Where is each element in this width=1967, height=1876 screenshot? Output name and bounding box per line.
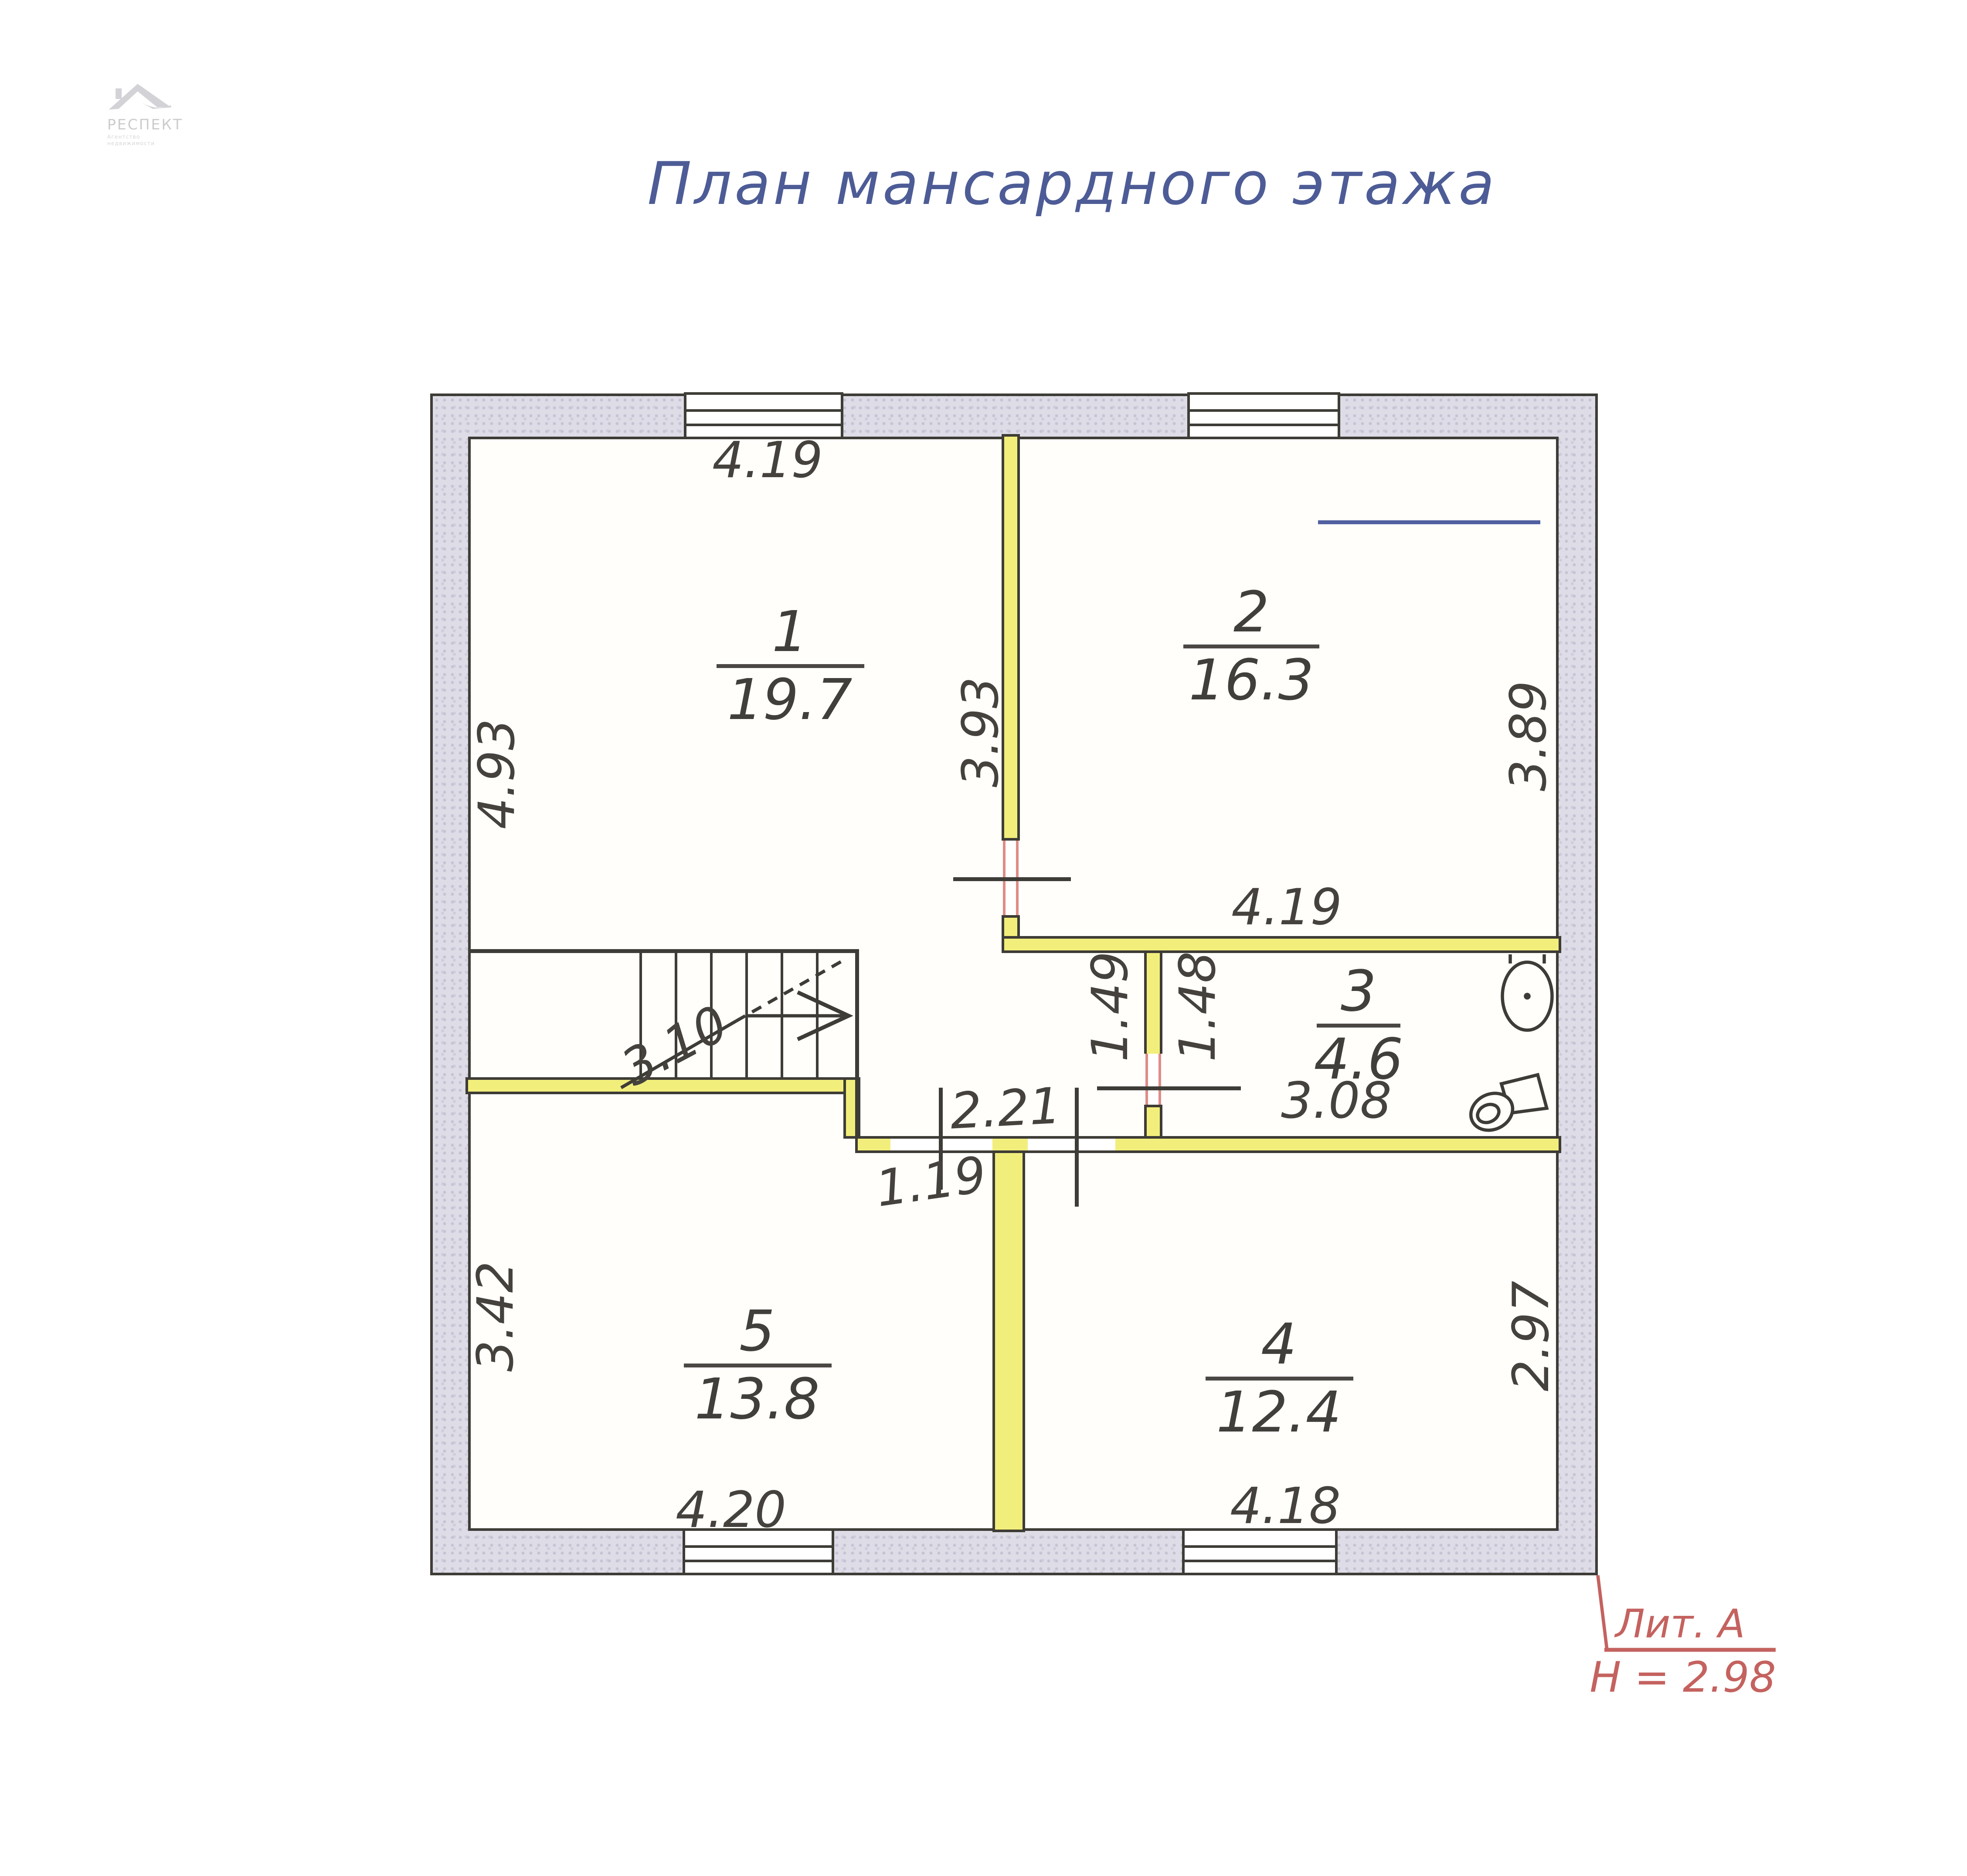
- partition-hall-bath: [1144, 950, 1162, 1056]
- dimension-hall-width: 2.21: [949, 1077, 1062, 1140]
- dimension-room4-height: 2.97: [1502, 1281, 1560, 1391]
- floor-plan-sheet: РЕСПЕКТ Агентство недвижимости План манс…: [0, 0, 1967, 1876]
- window-mullion: [1189, 409, 1339, 412]
- room-1-label: 1 19.7: [711, 604, 868, 731]
- dimension-room1-width: 4.19: [712, 431, 823, 489]
- door-leaf-line: [1075, 1088, 1078, 1207]
- window-mullion: [684, 1545, 833, 1548]
- dimension-room2-inner: 3.89: [1500, 681, 1557, 791]
- note-underline: [1318, 520, 1540, 524]
- dimension-hall-depth: 1.49: [1081, 951, 1139, 1062]
- liter-label: Лит. А: [1615, 1602, 1745, 1648]
- fraction-bar: [1205, 1377, 1353, 1381]
- fraction-bar: [1183, 645, 1319, 648]
- door-opening-room4: [1028, 1136, 1115, 1153]
- room-area: 19.7: [727, 671, 852, 731]
- ceiling-height-note-low: h = 1.48: [0, 29, 984, 86]
- window-room2: [1187, 392, 1340, 439]
- room-number: 3: [1341, 963, 1376, 1021]
- room-area: 12.4: [1216, 1383, 1341, 1443]
- room-number: 2: [1233, 584, 1269, 642]
- toilet-icon: [1463, 1069, 1563, 1145]
- logo-name: РЕСПЕКТ: [107, 118, 186, 133]
- room-5-label: 5 13.8: [679, 1303, 836, 1430]
- dimension-room1-inner: 3.93: [952, 677, 1009, 787]
- door-leaf-line: [1097, 1086, 1241, 1090]
- door-jamb: [1145, 1054, 1148, 1107]
- liter-height: Н = 2.98: [1590, 1652, 1776, 1702]
- dimension-room5-height: 3.42: [467, 1261, 524, 1372]
- dimension-bath-depth: 1.48: [1169, 951, 1226, 1062]
- dimension-room2-width: 4.19: [1231, 879, 1342, 936]
- room-number: 1: [772, 604, 808, 662]
- sink-icon: [1495, 952, 1560, 1035]
- dimension-room1-height: 4.93: [468, 719, 526, 829]
- window-mullion: [1183, 1560, 1336, 1562]
- room-2-label: 2 16.3: [1173, 584, 1330, 711]
- door-leaf-line: [953, 877, 1071, 881]
- partition-room2-hall: [1002, 936, 1561, 953]
- agency-logo: РЕСПЕКТ Агентство недвижимости: [107, 81, 186, 146]
- ceiling-height-note-full: h = 2.68: [0, 0, 984, 29]
- room-3-label: 3 4.6: [1280, 963, 1437, 1090]
- window-mullion: [1183, 1545, 1336, 1548]
- fraction-bar: [716, 664, 864, 668]
- window-mullion: [684, 1560, 833, 1562]
- room-number: 4: [1261, 1316, 1297, 1374]
- window-room4: [1182, 1528, 1338, 1575]
- fraction-bar: [1317, 1024, 1400, 1028]
- page-title: План мансардного этажа: [641, 149, 1504, 218]
- dimension-room4-width: 4.18: [1230, 1477, 1341, 1535]
- fraction-bar: [683, 1364, 831, 1367]
- door-opening-bath: [1144, 1054, 1162, 1107]
- dimension-bath-width: 3.08: [1281, 1072, 1392, 1130]
- door-jamb: [1158, 1054, 1161, 1107]
- room-area: 16.3: [1189, 651, 1314, 711]
- room-number: 5: [739, 1303, 775, 1361]
- partition-stub: [1002, 915, 1020, 939]
- dimension-room5-width: 4.20: [676, 1481, 786, 1539]
- room-4-label: 4 12.4: [1200, 1316, 1357, 1443]
- window-mullion: [685, 409, 842, 412]
- room-area: 13.8: [694, 1370, 819, 1430]
- partition-room5-room4: [992, 1150, 1025, 1532]
- window-mullion: [685, 424, 842, 426]
- window-mullion: [1189, 424, 1339, 426]
- logo-tagline: Агентство недвижимости: [107, 133, 186, 146]
